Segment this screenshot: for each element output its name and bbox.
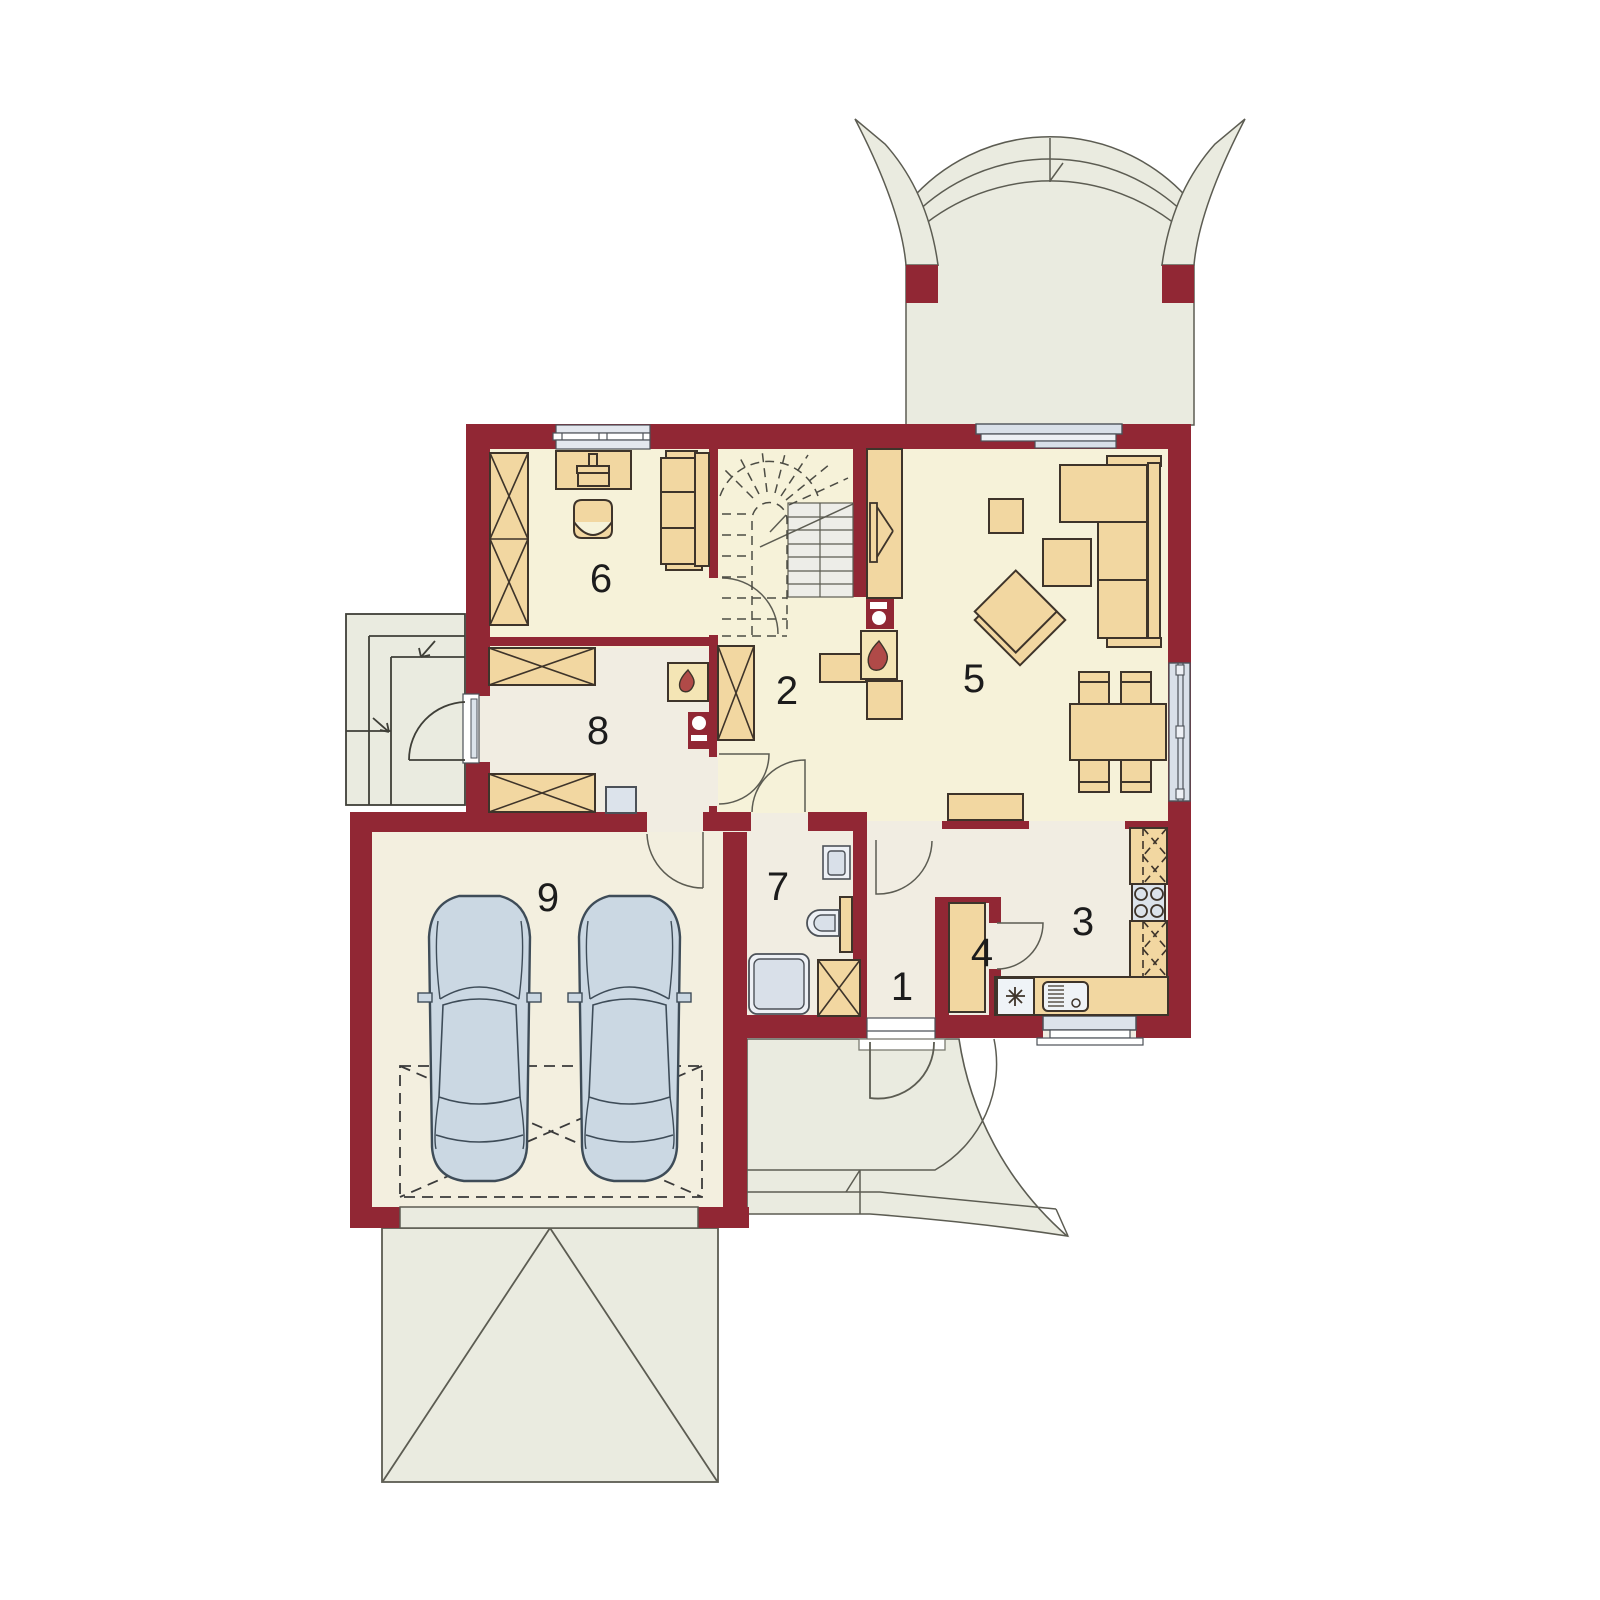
svg-text:2: 2 — [776, 669, 798, 713]
svg-text:4: 4 — [971, 931, 993, 975]
svg-text:7: 7 — [767, 865, 789, 909]
svg-text:3: 3 — [1072, 900, 1094, 944]
svg-text:8: 8 — [587, 709, 609, 753]
svg-text:1: 1 — [891, 965, 913, 1009]
svg-text:6: 6 — [590, 557, 612, 601]
svg-text:9: 9 — [537, 876, 559, 920]
svg-text:5: 5 — [963, 657, 985, 701]
